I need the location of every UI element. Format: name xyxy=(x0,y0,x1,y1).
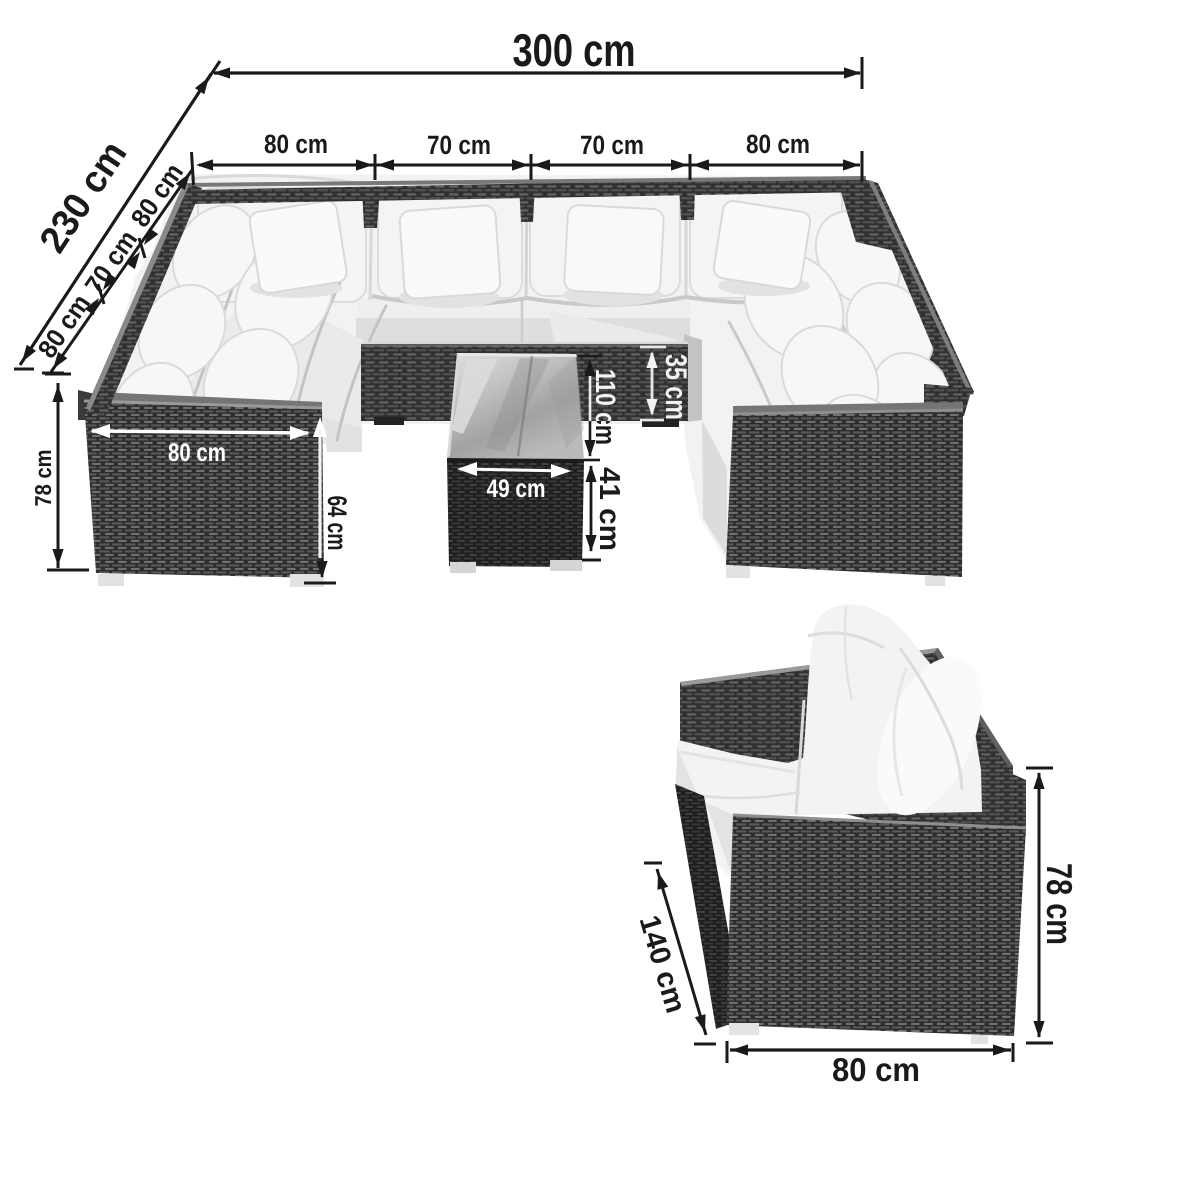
svg-text:35 cm: 35 cm xyxy=(659,354,692,420)
svg-text:80 cm: 80 cm xyxy=(832,1051,920,1088)
svg-text:49 cm: 49 cm xyxy=(487,475,546,503)
svg-text:78 cm: 78 cm xyxy=(1039,863,1080,945)
svg-text:70 cm: 70 cm xyxy=(580,130,644,160)
svg-text:80 cm: 80 cm xyxy=(746,129,810,159)
svg-text:78 cm: 78 cm xyxy=(30,450,56,507)
svg-text:41 cm: 41 cm xyxy=(593,467,625,551)
svg-text:80 cm: 80 cm xyxy=(264,129,328,159)
svg-text:70 cm: 70 cm xyxy=(427,130,491,160)
svg-text:80 cm: 80 cm xyxy=(168,439,226,467)
svg-text:300 cm: 300 cm xyxy=(513,24,636,76)
svg-text:64 cm: 64 cm xyxy=(322,496,352,551)
